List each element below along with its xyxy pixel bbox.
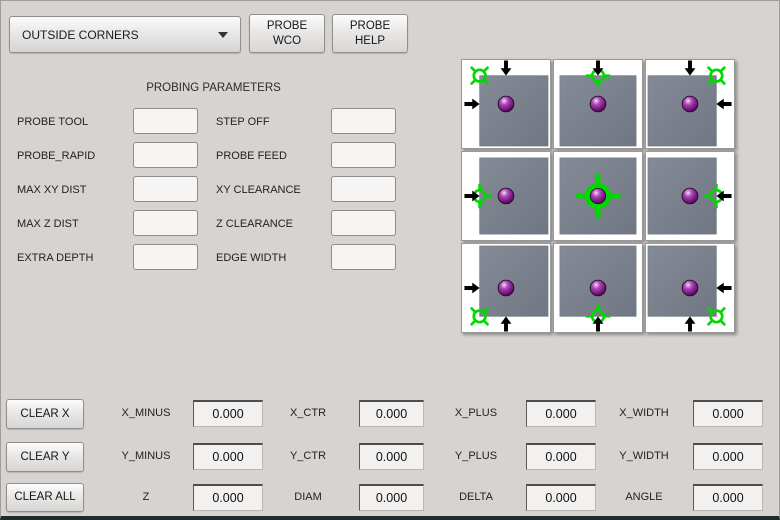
xy-clearance-label: XY CLEARANCE	[216, 184, 301, 196]
y-minus-value: 0.000	[193, 443, 263, 470]
z-value: 0.000	[193, 484, 263, 511]
diam-value: 0.000	[359, 484, 424, 511]
probe-tool-label: PROBE TOOL	[17, 116, 88, 128]
probe-pos-top-edge-button[interactable]	[553, 59, 643, 149]
probe-feed-input[interactable]	[331, 142, 396, 168]
corner-mode-select[interactable]: OUTSIDE CORNERS	[9, 16, 241, 53]
probe-feed-label: PROBE FEED	[216, 150, 287, 162]
extra-depth-input[interactable]	[133, 244, 198, 270]
probe-pos-bottom-right-corner-button[interactable]	[645, 243, 735, 333]
y-width-value: 0.000	[693, 443, 763, 470]
probe-pos-left-edge-button[interactable]	[461, 151, 551, 241]
probe-rapid-input[interactable]	[133, 142, 198, 168]
x-plus-label: X_PLUS	[431, 407, 521, 419]
probe-rapid-label: PROBE_RAPID	[17, 150, 95, 162]
probe-bottom-right-corner-icon	[646, 244, 734, 332]
max-xy-dist-input[interactable]	[133, 176, 198, 202]
clear-x-label: CLEAR X	[20, 407, 69, 422]
max-z-dist-input[interactable]	[133, 210, 198, 236]
y-ctr-value: 0.000	[359, 443, 424, 470]
clear-all-button[interactable]: CLEAR ALL	[6, 483, 84, 512]
probe-wco-line1: PROBE	[267, 19, 307, 34]
y-plus-label: Y_PLUS	[431, 450, 521, 462]
x-ctr-value: 0.000	[359, 400, 424, 427]
delta-value: 0.000	[526, 484, 596, 511]
probe-wco-button[interactable]: PROBE WCO	[249, 14, 325, 53]
probe-center-icon	[554, 152, 642, 240]
probe-pos-bottom-left-corner-button[interactable]	[461, 243, 551, 333]
delta-label: DELTA	[431, 491, 521, 503]
probe-help-line1: PROBE	[350, 19, 390, 34]
x-plus-value: 0.000	[526, 400, 596, 427]
probe-bottom-edge-icon	[554, 244, 642, 332]
diam-label: DIAM	[263, 491, 353, 503]
z-clearance-label: Z CLEARANCE	[216, 218, 293, 230]
x-minus-value: 0.000	[193, 400, 263, 427]
probe-top-left-corner-icon	[462, 60, 550, 148]
max-xy-dist-label: MAX XY DIST	[17, 184, 86, 196]
step-off-label: STEP OFF	[216, 116, 270, 128]
probe-top-right-corner-icon	[646, 60, 734, 148]
x-minus-label: X_MINUS	[101, 407, 191, 419]
probe-top-edge-icon	[554, 60, 642, 148]
y-width-label: Y_WIDTH	[599, 450, 689, 462]
probe-bottom-left-corner-icon	[462, 244, 550, 332]
probe-help-button[interactable]: PROBE HELP	[332, 14, 408, 53]
clear-all-label: CLEAR ALL	[14, 490, 75, 505]
probe-position-grid	[461, 59, 735, 333]
probe-pos-right-edge-button[interactable]	[645, 151, 735, 241]
corner-mode-value: OUTSIDE CORNERS	[22, 28, 139, 42]
y-plus-value: 0.000	[526, 443, 596, 470]
probe-help-line2: HELP	[355, 34, 385, 49]
clear-y-button[interactable]: CLEAR Y	[6, 442, 84, 472]
x-ctr-label: X_CTR	[263, 407, 353, 419]
probe-pos-bottom-edge-button[interactable]	[553, 243, 643, 333]
probe-pos-center-button[interactable]	[553, 151, 643, 241]
z-clearance-input[interactable]	[331, 210, 396, 236]
x-width-value: 0.000	[693, 400, 763, 427]
probe-wco-line2: WCO	[273, 34, 301, 49]
clear-y-label: CLEAR Y	[20, 450, 69, 465]
y-minus-label: Y_MINUS	[101, 450, 191, 462]
max-z-dist-label: MAX Z DIST	[17, 218, 79, 230]
probe-pos-top-left-corner-button[interactable]	[461, 59, 551, 149]
step-off-input[interactable]	[331, 108, 396, 134]
edge-width-input[interactable]	[331, 244, 396, 270]
z-label: Z	[101, 491, 191, 503]
probe-left-edge-icon	[462, 152, 550, 240]
probe-screen: OUTSIDE CORNERS PROBE WCO PROBE HELP PRO…	[0, 0, 780, 520]
y-ctr-label: Y_CTR	[263, 450, 353, 462]
edge-width-label: EDGE WIDTH	[216, 252, 286, 264]
probe-tool-input[interactable]	[133, 108, 198, 134]
probe-pos-top-right-corner-button[interactable]	[645, 59, 735, 149]
probing-parameters-title: PROBING PARAMETERS	[61, 82, 366, 94]
extra-depth-label: EXTRA DEPTH	[17, 252, 93, 264]
clear-x-button[interactable]: CLEAR X	[6, 399, 84, 429]
probe-right-edge-icon	[646, 152, 734, 240]
angle-label: ANGLE	[599, 491, 689, 503]
chevron-down-icon	[218, 32, 228, 38]
xy-clearance-input[interactable]	[331, 176, 396, 202]
angle-value: 0.000	[693, 484, 763, 511]
x-width-label: X_WIDTH	[599, 407, 689, 419]
